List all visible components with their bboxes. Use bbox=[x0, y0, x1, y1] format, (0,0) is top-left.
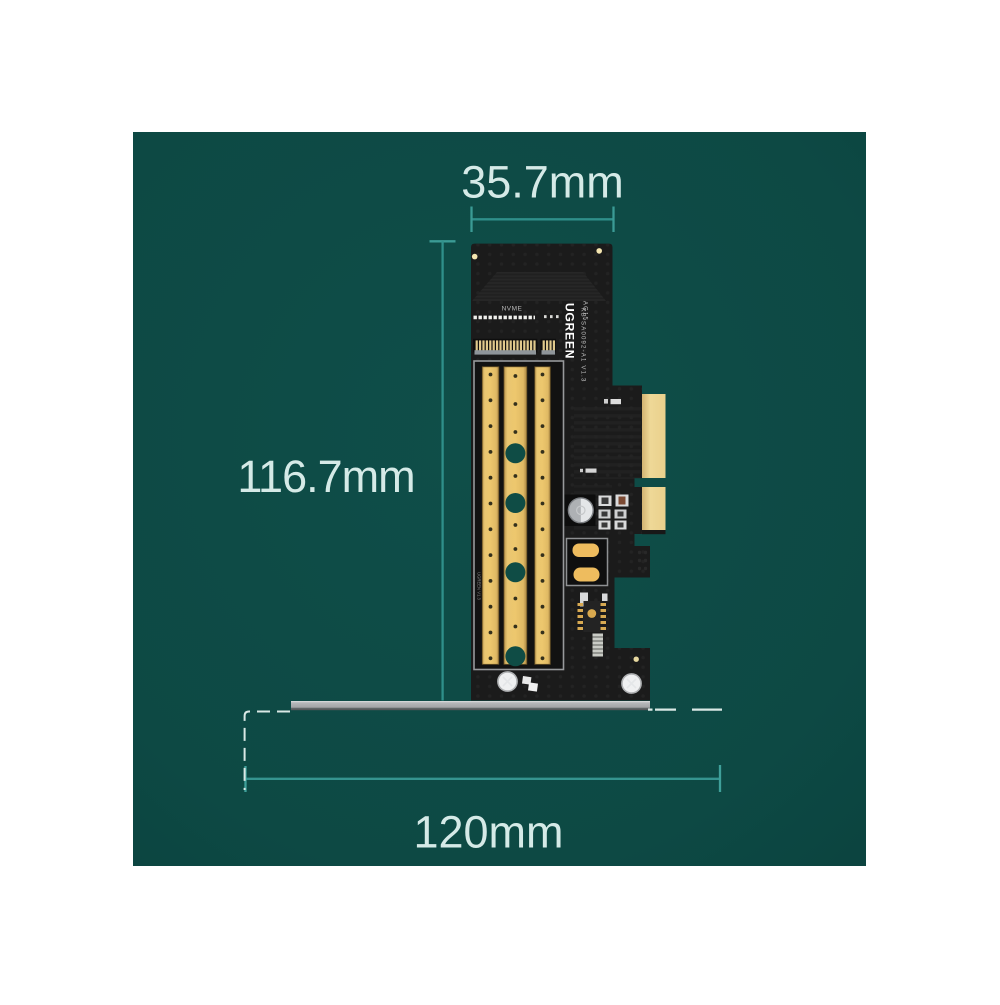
svg-text:120mm: 120mm bbox=[413, 807, 563, 858]
svg-text:UGREEN: UGREEN bbox=[562, 303, 576, 359]
svg-text:AG15: AG15 bbox=[581, 301, 587, 321]
svg-text:UGREEN V1.3: UGREEN V1.3 bbox=[476, 572, 481, 600]
svg-text:116.7mm: 116.7mm bbox=[237, 451, 414, 502]
svg-text:35.7mm: 35.7mm bbox=[461, 157, 624, 208]
svg-text:NVME: NVME bbox=[502, 306, 523, 313]
